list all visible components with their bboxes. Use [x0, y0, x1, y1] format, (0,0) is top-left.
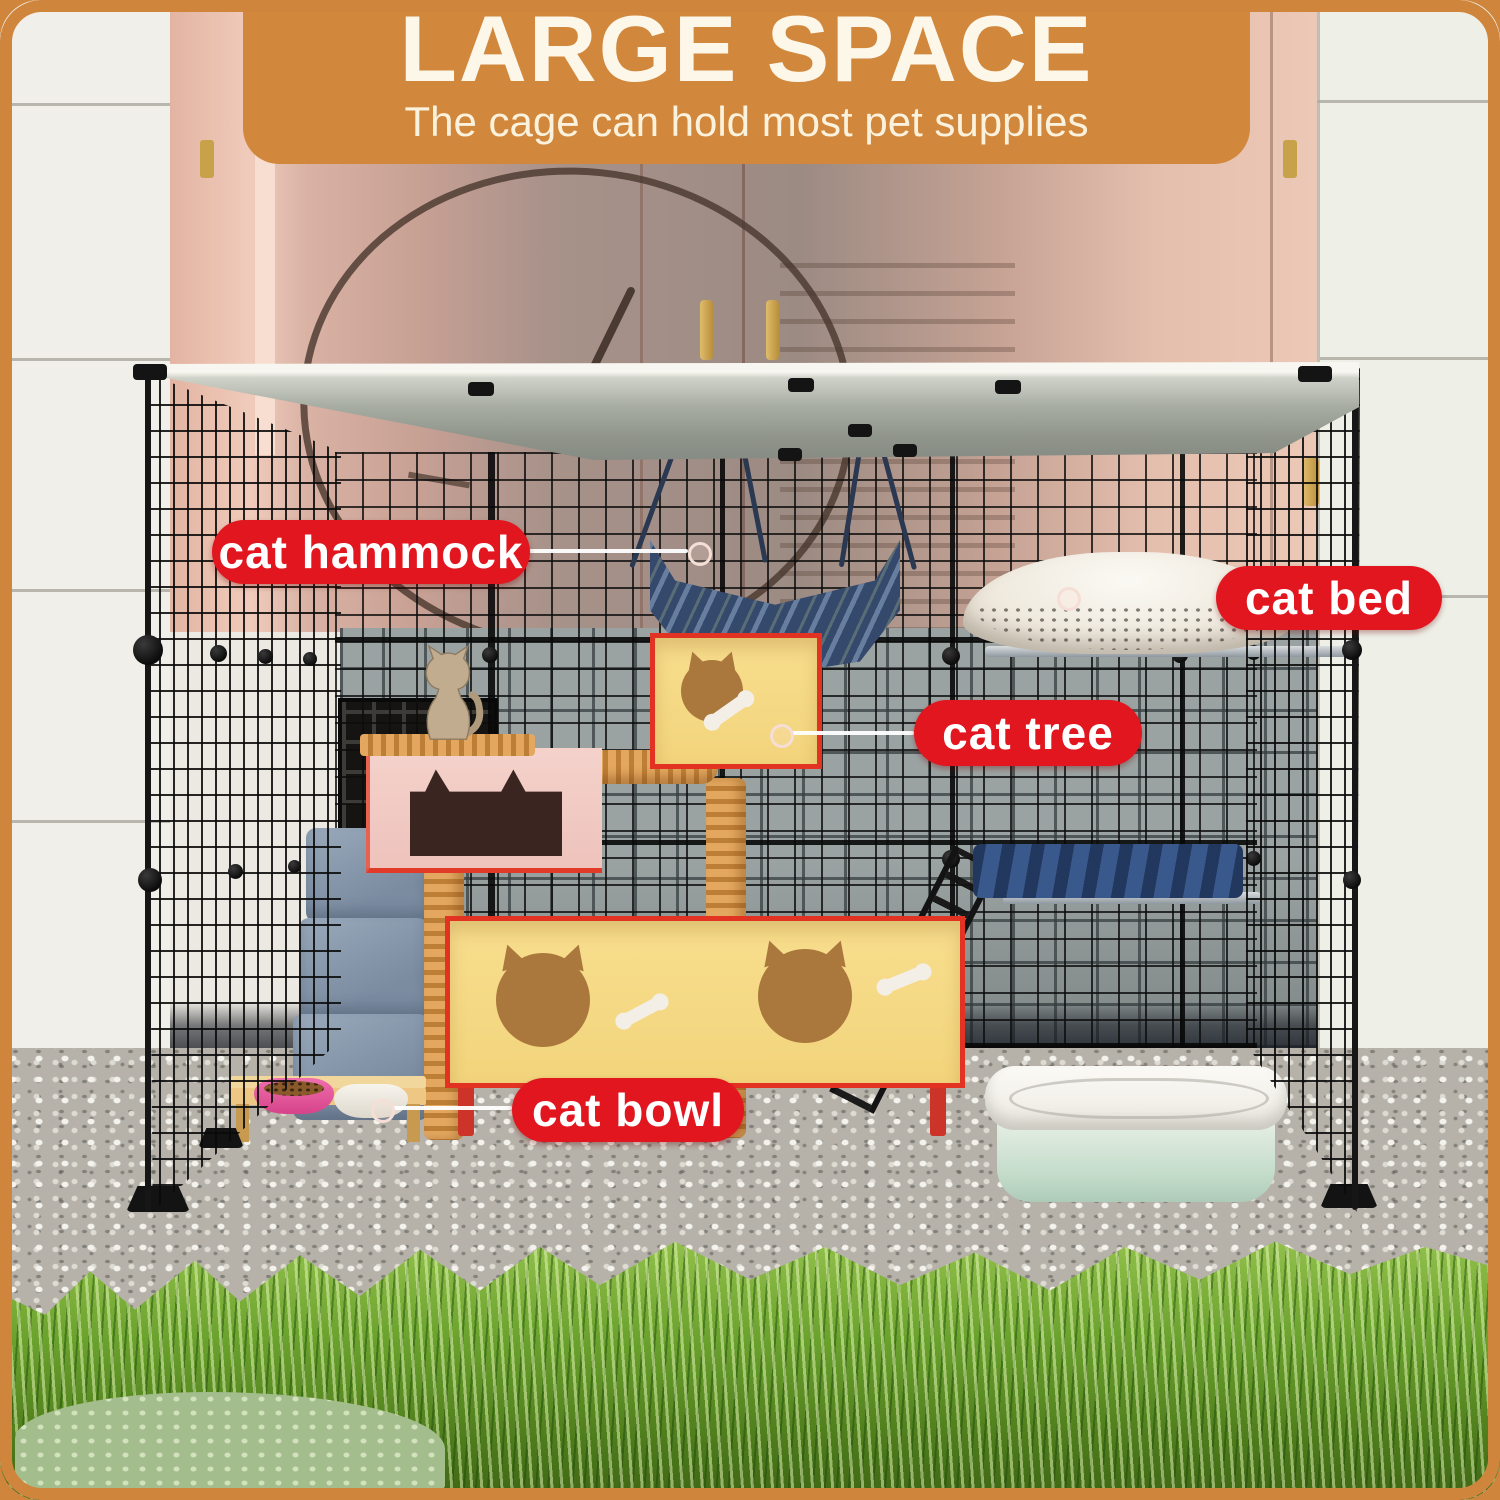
connector-ball [1342, 640, 1362, 660]
wall-seam [0, 103, 170, 106]
cover-clip [778, 448, 802, 461]
litter-box-inner-edge [1009, 1078, 1269, 1119]
connector-ball [228, 864, 243, 879]
callout-pill-tree: cat tree [914, 700, 1142, 766]
bone-decor [620, 995, 665, 1027]
cat-tree-big-box [445, 916, 965, 1088]
cat-figurine [403, 642, 491, 742]
cover-clip [788, 378, 814, 392]
connector-ball [303, 652, 317, 666]
marker-ring-tree [770, 724, 794, 748]
cover-clip [995, 380, 1021, 394]
callout-label-hammock: cat hammock [218, 525, 523, 579]
callout-label-tree: cat tree [942, 706, 1114, 760]
cover-clip [893, 444, 917, 457]
marker-ring-hammock [688, 542, 712, 566]
leader-line-bowl [392, 1106, 512, 1110]
connector-ball [1343, 871, 1361, 889]
bone-decor [881, 965, 927, 994]
callout-label-bed: cat bed [1245, 571, 1413, 625]
connector-ball [258, 649, 273, 664]
gold-handle [700, 300, 713, 360]
cat-house-window [410, 764, 562, 856]
banner-title: LARGE SPACE [400, 2, 1094, 96]
blue-mat [973, 844, 1243, 898]
leader-line-tree [792, 731, 914, 735]
callout-label-bowl: cat bowl [532, 1083, 724, 1137]
gold-hinge [1283, 140, 1297, 178]
wall-seam [1320, 357, 1500, 360]
callout-pill-bowl: cat bowl [512, 1078, 744, 1142]
cover-clip [133, 364, 167, 380]
cage-front-right-rail [1352, 368, 1358, 1210]
product-photo-scene: cat hammock cat bed cat tree cat bowl LA… [0, 0, 1500, 1500]
wall-seam [0, 358, 170, 361]
banner-subtitle: The cage can hold most pet supplies [404, 98, 1088, 146]
cover-clip [848, 424, 872, 437]
cover-clip [1298, 366, 1332, 382]
gold-handle [766, 300, 779, 360]
cat-tree-pink-house [366, 748, 602, 873]
connector-ball [133, 635, 163, 665]
marker-ring-bowl [371, 1099, 395, 1123]
callout-pill-bed: cat bed [1216, 566, 1442, 630]
connector-ball [210, 645, 227, 662]
cover-clip [468, 382, 494, 396]
cat-head-hole [496, 953, 590, 1047]
cage-front-left-rail [145, 372, 151, 1212]
wall-seam [1317, 100, 1500, 103]
connector-ball [288, 860, 301, 873]
connector-ball [138, 868, 162, 892]
litter-box-base [997, 1118, 1275, 1202]
litter-box-rim [985, 1066, 1287, 1130]
headline-banner: LARGE SPACE The cage can hold most pet s… [243, 0, 1250, 164]
gold-hinge [200, 140, 214, 178]
callout-pill-hammock: cat hammock [212, 520, 530, 584]
cat-tree-top-box [650, 633, 822, 769]
marker-ring-bed [1057, 587, 1081, 611]
leader-line-hammock [528, 549, 688, 553]
cat-head-hole [758, 949, 852, 1043]
connector-ball [942, 647, 960, 665]
